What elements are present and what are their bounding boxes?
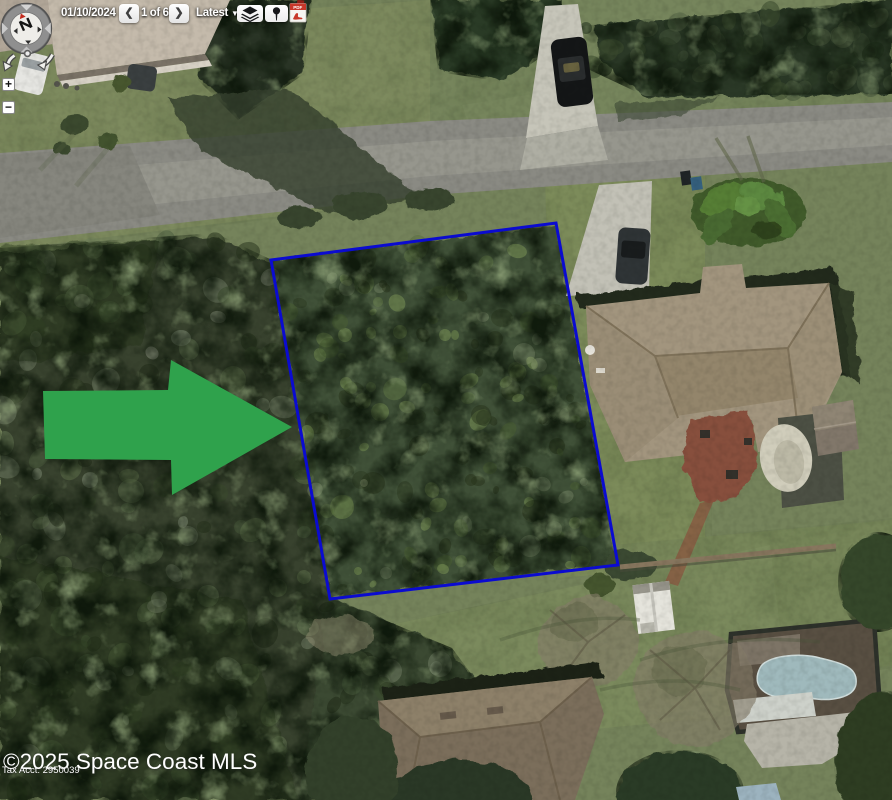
svg-text:PDF: PDF bbox=[293, 5, 302, 10]
